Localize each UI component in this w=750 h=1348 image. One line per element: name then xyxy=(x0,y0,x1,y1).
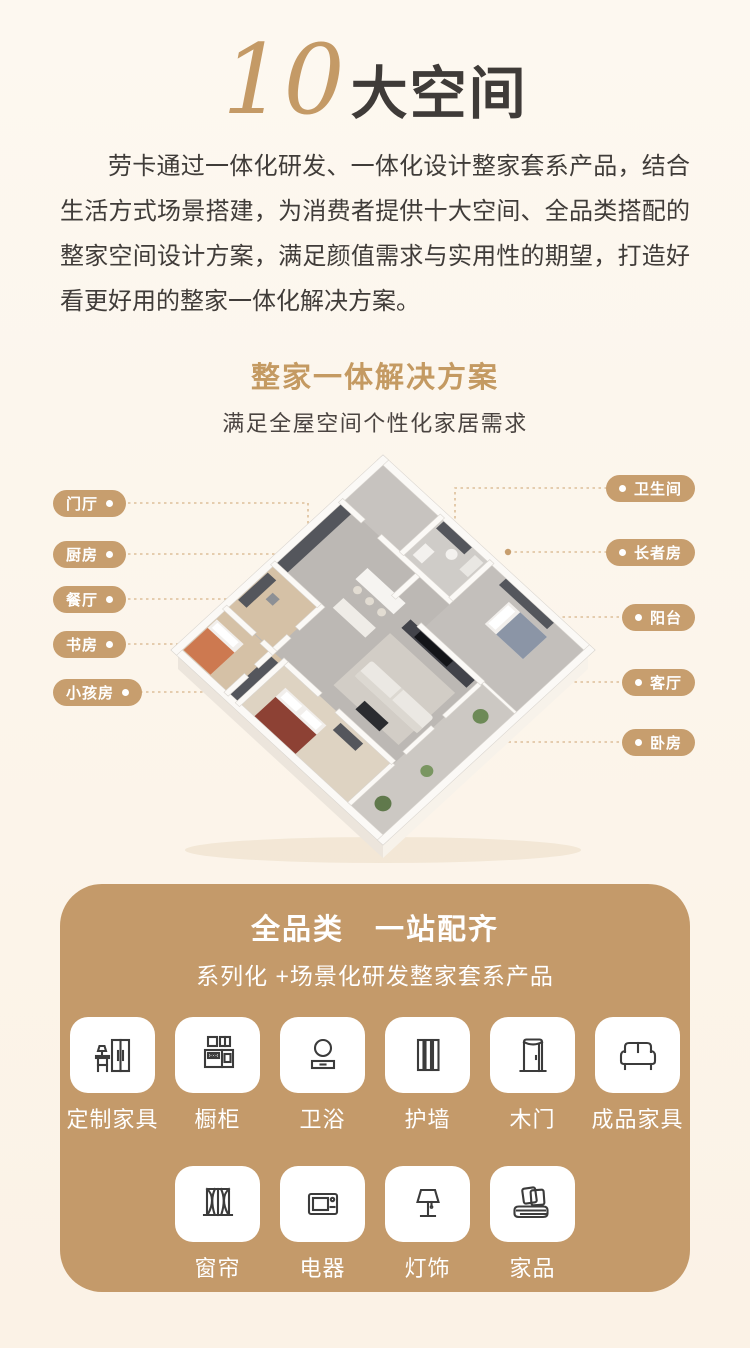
catalog-item-custom-furniture: 定制家具 xyxy=(70,1017,155,1134)
custom-furniture-icon xyxy=(89,1031,137,1079)
floorplan-render xyxy=(153,452,613,868)
bathroom-icon xyxy=(299,1031,347,1079)
icon-tile xyxy=(490,1166,575,1242)
icon-tile xyxy=(280,1166,365,1242)
room-label-text: 阳台 xyxy=(650,607,682,628)
hero-title-text: 大空间 xyxy=(351,66,528,123)
room-label-text: 小孩房 xyxy=(66,682,114,703)
catalog-item-lighting: 灯饰 xyxy=(385,1166,470,1283)
room-label-bedroom: 卧房 xyxy=(622,729,695,756)
room-label-text: 厨房 xyxy=(66,544,98,565)
catalog-item-label: 橱柜 xyxy=(194,1102,240,1134)
catalog-item-label: 木门 xyxy=(509,1102,555,1134)
curtain-icon xyxy=(194,1180,242,1228)
pill-dot xyxy=(619,549,626,556)
pill-dot xyxy=(635,614,642,621)
sofa-icon xyxy=(614,1031,662,1079)
room-label-kitchen: 厨房 xyxy=(53,541,126,568)
catalog-card: 全品类 一站配齐 系列化 +场景化研发整家套系产品 定制家具 xyxy=(60,884,690,1292)
kitchen-cabinet-icon xyxy=(194,1031,242,1079)
catalog-item-label: 定制家具 xyxy=(67,1102,159,1134)
room-label-text: 长者房 xyxy=(634,542,682,563)
icon-tile xyxy=(70,1017,155,1093)
icon-tile xyxy=(385,1166,470,1242)
pill-dot xyxy=(635,739,642,746)
catalog-item-cabinet: 橱柜 xyxy=(175,1017,260,1134)
room-label-text: 客厅 xyxy=(650,672,682,693)
catalog-item-label: 灯饰 xyxy=(404,1251,450,1283)
solution-subheading: 满足全屋空间个性化家居需求 xyxy=(0,406,750,438)
pill-dot xyxy=(619,485,626,492)
bedding-icon xyxy=(509,1180,557,1228)
pill-dot xyxy=(122,689,129,696)
pill-dot xyxy=(106,551,113,558)
icon-tile xyxy=(175,1017,260,1093)
hero-number: 10 xyxy=(222,32,344,128)
catalog-item-curtain: 窗帘 xyxy=(175,1166,260,1283)
intro-paragraph: 劳卡通过一体化研发、一体化设计整家套系产品，结合生活方式场景搭建，为消费者提供十… xyxy=(60,144,690,324)
solution-section: 整家一体解决方案 满足全屋空间个性化家居需求 xyxy=(0,354,750,438)
room-label-text: 书房 xyxy=(66,634,98,655)
icon-tile xyxy=(595,1017,680,1093)
icon-tile xyxy=(490,1017,575,1093)
room-label-kids-room: 小孩房 xyxy=(53,679,142,706)
hero: 10 大空间 劳卡通过一体化研发、一体化设计整家套系产品，结合生活方式场景搭建，… xyxy=(0,0,750,324)
catalog-item-wall-panel: 护墙 xyxy=(385,1017,470,1134)
icon-tile xyxy=(385,1017,470,1093)
catalog-grid: 定制家具 橱柜 xyxy=(60,1017,690,1283)
catalog-item-label: 家品 xyxy=(509,1251,555,1283)
room-label-text: 门厅 xyxy=(66,493,98,514)
wooden-door-icon xyxy=(509,1031,557,1079)
catalog-item-home-goods: 家品 xyxy=(490,1166,575,1283)
room-label-elder-room: 长者房 xyxy=(606,539,695,566)
catalog-item-label: 卫浴 xyxy=(299,1102,345,1134)
page-title: 10 大空间 xyxy=(0,32,750,128)
catalog-item-label: 窗帘 xyxy=(194,1251,240,1283)
catalog-title: 全品类 一站配齐 xyxy=(60,906,690,948)
pill-dot xyxy=(106,596,113,603)
room-label-text: 卧房 xyxy=(650,732,682,753)
room-label-text: 卫生间 xyxy=(634,478,682,499)
catalog-item-label: 成品家具 xyxy=(592,1102,684,1134)
icon-tile xyxy=(280,1017,365,1093)
wall-panel-icon xyxy=(404,1031,452,1079)
pill-dot xyxy=(106,641,113,648)
catalog-subtitle: 系列化 +场景化研发整家套系产品 xyxy=(60,957,690,991)
floorplan-section: 门厅 厨房 餐厅 书房 小孩房 卫生间 长者房 阳台 客厅 卧房 xyxy=(0,450,750,882)
solution-heading: 整家一体解决方案 xyxy=(0,354,750,396)
catalog-item-label: 护墙 xyxy=(404,1102,450,1134)
room-label-balcony: 阳台 xyxy=(622,604,695,631)
catalog-item-bathroom: 卫浴 xyxy=(280,1017,365,1134)
room-label-text: 餐厅 xyxy=(66,589,98,610)
room-label-bathroom: 卫生间 xyxy=(606,475,695,502)
pill-dot xyxy=(635,679,642,686)
pill-dot xyxy=(106,500,113,507)
lamp-icon xyxy=(404,1180,452,1228)
catalog-item-appliance: 电器 xyxy=(280,1166,365,1283)
room-label-entry-hall: 门厅 xyxy=(53,490,126,517)
room-label-living-room: 客厅 xyxy=(622,669,695,696)
room-label-study: 书房 xyxy=(53,631,126,658)
catalog-item-label: 电器 xyxy=(299,1251,345,1283)
appliance-icon xyxy=(299,1180,347,1228)
catalog-item-wooden-door: 木门 xyxy=(490,1017,575,1134)
catalog-item-finished-furniture: 成品家具 xyxy=(595,1017,680,1134)
room-label-dining: 餐厅 xyxy=(53,586,126,613)
icon-tile xyxy=(175,1166,260,1242)
